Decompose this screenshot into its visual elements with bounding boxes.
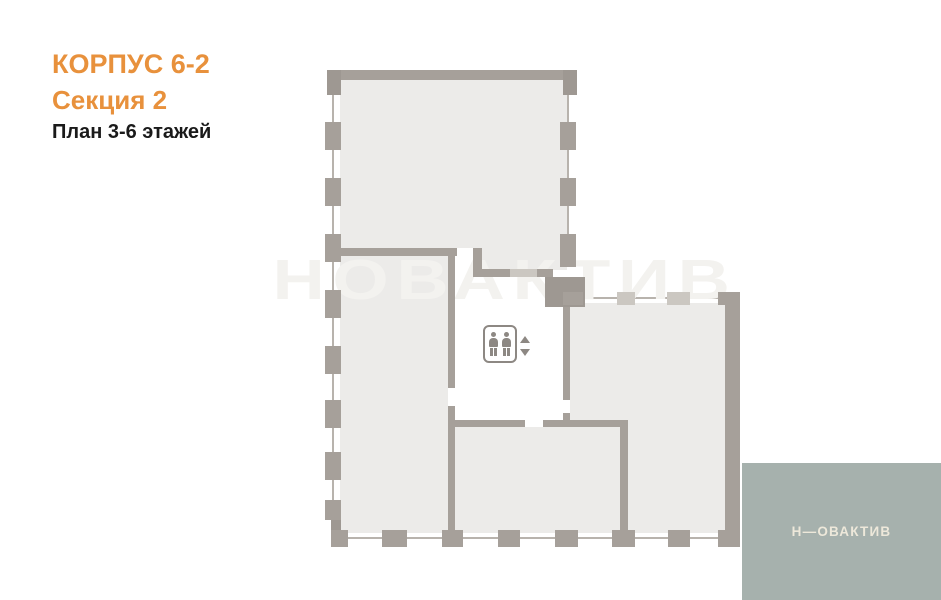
window-pier <box>325 346 341 374</box>
window-pier <box>325 178 341 206</box>
person-legs <box>490 348 497 356</box>
building-title: КОРПУС 6-2 <box>52 48 211 80</box>
window-pier <box>718 530 740 547</box>
person-body <box>489 338 498 347</box>
window-pier <box>560 178 576 206</box>
window-pier <box>718 292 740 305</box>
wall-corner-block <box>327 70 341 95</box>
wall-segment <box>331 70 575 80</box>
window-pier <box>442 530 463 547</box>
window-pier <box>560 234 576 267</box>
window-pier <box>325 290 341 318</box>
door-segment <box>667 292 690 305</box>
page: КОРПУС 6-2 Секция 2 План 3-6 этажей НОВА… <box>0 0 941 600</box>
door-segment <box>617 292 635 305</box>
window-pier <box>382 530 407 547</box>
arrow-down-icon <box>520 349 530 356</box>
window-pier <box>563 292 583 305</box>
wall-segment <box>448 248 455 388</box>
room-fill <box>570 303 725 420</box>
wall-segment <box>620 420 628 533</box>
arrow-up-icon <box>520 336 530 343</box>
room-fill <box>627 420 725 533</box>
window-pier <box>325 500 341 520</box>
door-segment <box>510 269 537 277</box>
window-pier <box>612 530 635 547</box>
window-pier <box>325 452 341 480</box>
window-pier <box>560 122 576 150</box>
plan-header: КОРПУС 6-2 Секция 2 План 3-6 этажей <box>52 48 211 144</box>
elevator-icon <box>483 325 517 363</box>
wall-segment <box>543 420 627 427</box>
person-head <box>491 332 496 337</box>
window-pier <box>325 400 341 428</box>
window-pier <box>331 530 348 547</box>
person-body <box>502 338 511 347</box>
room-fill <box>455 427 620 533</box>
wall-segment <box>725 295 740 545</box>
window-pier <box>325 122 341 150</box>
person-legs <box>503 348 510 356</box>
window-pier <box>668 530 690 547</box>
room-fill <box>340 80 567 248</box>
person-head <box>504 332 509 337</box>
window-pier <box>555 530 578 547</box>
brand-logo-box: Н—ОВАКТИВ <box>742 463 941 600</box>
wall-segment <box>448 420 525 427</box>
wall-segment <box>331 248 457 256</box>
person-icon <box>502 332 511 356</box>
brand-logo-text: Н—ОВАКТИВ <box>792 524 892 539</box>
person-icon <box>489 332 498 356</box>
window-pier <box>325 234 341 262</box>
window-pier <box>498 530 520 547</box>
section-title: Секция 2 <box>52 85 211 116</box>
wall-corner-block <box>563 70 577 95</box>
floors-subtitle: План 3-6 этажей <box>52 120 211 144</box>
wall-segment <box>563 303 570 400</box>
